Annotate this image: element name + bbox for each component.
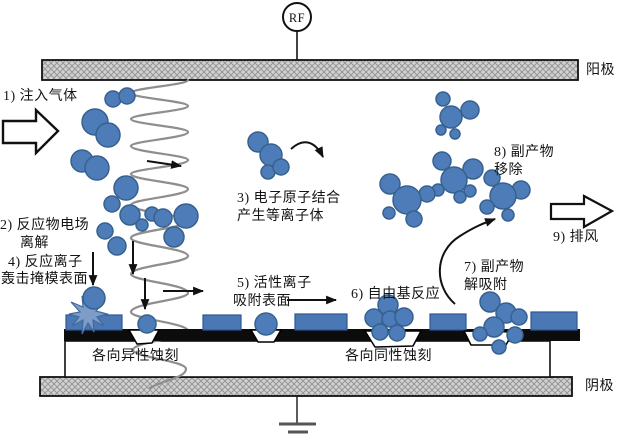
molecule bbox=[97, 223, 113, 239]
molecule bbox=[436, 125, 446, 135]
step7-label-line1: 7) 副产物 bbox=[464, 259, 524, 276]
ground-symbol bbox=[279, 424, 316, 432]
molecule bbox=[433, 152, 451, 170]
molecule bbox=[164, 227, 184, 247]
rf-label: RF bbox=[286, 10, 308, 27]
molecule bbox=[96, 123, 120, 147]
plasma-etching-diagram: RF 阳极 阴极 1) 注入气体 2) 反应物电场 离解 3) 电子原子结合 产… bbox=[0, 0, 624, 438]
molecule bbox=[104, 196, 120, 212]
molecule bbox=[114, 176, 138, 200]
molecule bbox=[507, 327, 523, 343]
molecule bbox=[383, 207, 395, 219]
step4-label-line1: 4) 反应离子 bbox=[8, 254, 83, 271]
molecule bbox=[154, 209, 172, 227]
gas-inlet-arrow bbox=[3, 110, 58, 153]
molecule bbox=[436, 92, 450, 106]
molecule bbox=[389, 325, 405, 341]
step8-label-line1: 8) 副产物 bbox=[494, 144, 554, 161]
molecule bbox=[273, 159, 289, 175]
molecule bbox=[502, 209, 514, 221]
molecule bbox=[511, 309, 527, 325]
molecule bbox=[393, 186, 421, 214]
molecule bbox=[473, 327, 487, 341]
anisotropic-etch-label: 各向异性蚀刻 bbox=[92, 348, 179, 365]
exhaust-arrow bbox=[551, 196, 612, 227]
molecule bbox=[395, 308, 413, 326]
step5-label-line1: 5) 活性离子 bbox=[237, 275, 312, 292]
step3-label-line1: 3) 电子原子结合 bbox=[237, 190, 341, 207]
molecule bbox=[255, 313, 277, 335]
molecule bbox=[450, 129, 460, 139]
mask-block bbox=[203, 315, 241, 330]
step1-label: 1) 注入气体 bbox=[3, 88, 78, 105]
molecule bbox=[492, 340, 506, 354]
molecule bbox=[406, 211, 422, 227]
anode-label: 阳极 bbox=[586, 62, 615, 79]
step6-label: 6) 自由基反应 bbox=[351, 286, 440, 303]
molecule bbox=[136, 219, 148, 231]
step7-label-line2: 解吸附 bbox=[464, 277, 508, 294]
mask-block bbox=[430, 314, 466, 330]
plasma-molecules bbox=[248, 132, 289, 179]
step5-label-line2: 吸附表面 bbox=[233, 293, 291, 310]
isotropic-etch-label: 各向同性蚀刻 bbox=[345, 348, 432, 365]
molecule bbox=[108, 237, 126, 255]
molecule bbox=[119, 88, 135, 104]
step9-label: 9) 排风 bbox=[553, 229, 599, 246]
mask-block bbox=[295, 314, 347, 330]
step2-label-line2: 离解 bbox=[20, 235, 49, 252]
molecule bbox=[174, 204, 198, 228]
cathode-electrode bbox=[40, 377, 572, 396]
molecule bbox=[372, 324, 388, 340]
mask-block bbox=[531, 312, 577, 330]
step4-label-line2: 轰击掩模表面 bbox=[1, 271, 88, 288]
step2-label-line1: 2) 反应物电场 bbox=[0, 217, 89, 234]
molecule bbox=[461, 101, 479, 119]
step3-label-line2: 产生等离子体 bbox=[237, 208, 324, 225]
anode-electrode bbox=[42, 60, 578, 80]
molecule bbox=[83, 287, 105, 309]
molecule bbox=[480, 200, 494, 214]
step8-label-line2: 移除 bbox=[494, 162, 523, 179]
molecule bbox=[454, 191, 466, 203]
molecule bbox=[138, 315, 156, 333]
molecule bbox=[440, 106, 462, 128]
cathode-label: 阴极 bbox=[585, 378, 614, 395]
molecule bbox=[105, 91, 121, 107]
molecule bbox=[441, 167, 467, 193]
molecule bbox=[85, 156, 109, 180]
plasma-curved-arrow bbox=[291, 142, 323, 157]
